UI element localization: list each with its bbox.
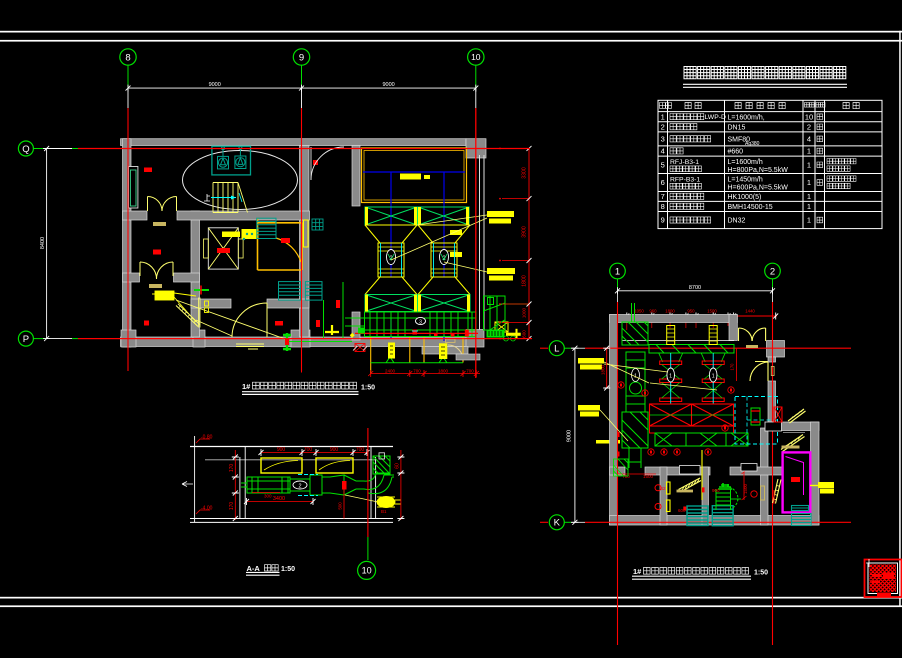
svg-text:1800: 1800 <box>522 275 528 287</box>
svg-text:1: 1 <box>615 266 620 277</box>
svg-text:LWP-D: LWP-D <box>705 114 726 121</box>
svg-text:BMH14500-15: BMH14500-15 <box>728 204 773 211</box>
svg-text:1050: 1050 <box>634 309 644 314</box>
svg-text:3: 3 <box>661 135 665 144</box>
svg-text:700: 700 <box>413 368 421 373</box>
svg-text:1:50: 1:50 <box>754 570 768 577</box>
svg-text:2: 2 <box>661 122 665 131</box>
svg-text:4: 4 <box>807 135 811 144</box>
svg-text:-0.80: -0.80 <box>201 435 213 441</box>
svg-text:8: 8 <box>661 202 665 211</box>
svg-text:2: 2 <box>807 122 811 131</box>
svg-text:P: P <box>23 334 29 345</box>
svg-text:900: 900 <box>330 447 339 453</box>
svg-text:#660: #660 <box>728 149 744 156</box>
svg-text:1500: 1500 <box>643 474 654 479</box>
svg-text:1800: 1800 <box>601 364 606 375</box>
svg-text:1440: 1440 <box>745 309 755 314</box>
svg-text:8700: 8700 <box>689 285 701 291</box>
svg-text:9000: 9000 <box>382 82 394 88</box>
svg-text:Q: Q <box>22 144 29 155</box>
svg-text:10: 10 <box>471 52 481 62</box>
svg-text:RFJ-B3-1: RFJ-B3-1 <box>670 159 699 166</box>
svg-text:8400: 8400 <box>40 237 46 249</box>
svg-text:6: 6 <box>661 178 665 187</box>
svg-text:3: 3 <box>419 319 422 325</box>
svg-text:600: 600 <box>678 508 686 513</box>
svg-text:K: K <box>554 518 561 529</box>
svg-text:1: 1 <box>712 374 715 380</box>
svg-text:5: 5 <box>661 160 665 169</box>
svg-text:9000: 9000 <box>209 82 221 88</box>
svg-text:H=600Pa,N=5.5kW: H=600Pa,N=5.5kW <box>728 184 789 191</box>
svg-text:1: 1 <box>807 192 811 201</box>
svg-text:10: 10 <box>362 566 372 576</box>
svg-text:170: 170 <box>730 363 735 371</box>
svg-text:300: 300 <box>264 494 272 499</box>
svg-text:9: 9 <box>661 216 665 225</box>
svg-text:B1: B1 <box>381 509 387 514</box>
svg-text:700: 700 <box>466 368 474 373</box>
svg-text:60: 60 <box>395 463 401 469</box>
svg-text:2400: 2400 <box>385 368 396 373</box>
svg-text:8: 8 <box>125 52 130 63</box>
svg-text:1#: 1# <box>633 567 642 576</box>
svg-text:950: 950 <box>687 309 695 314</box>
svg-text:B2: B2 <box>660 486 666 491</box>
svg-text:700: 700 <box>622 474 630 479</box>
svg-text:2: 2 <box>298 484 301 490</box>
svg-text:3900: 3900 <box>522 226 528 238</box>
svg-text:9: 9 <box>299 52 304 63</box>
svg-text:-4.00: -4.00 <box>201 506 213 512</box>
svg-text:9000: 9000 <box>567 430 573 442</box>
svg-text:700: 700 <box>304 447 313 453</box>
svg-text:1500: 1500 <box>743 483 748 494</box>
svg-text:2: 2 <box>770 266 775 277</box>
svg-text:1: 1 <box>807 147 811 156</box>
svg-text:900: 900 <box>712 488 720 493</box>
svg-text:1: 1 <box>807 216 811 225</box>
svg-text:1000: 1000 <box>522 307 527 318</box>
svg-text:3300: 3300 <box>522 167 528 179</box>
svg-text:1:50: 1:50 <box>281 566 295 573</box>
svg-text:700: 700 <box>356 447 365 453</box>
svg-text:1800: 1800 <box>438 368 449 373</box>
svg-text:10: 10 <box>805 112 813 121</box>
svg-text:H=800Pa,N=5.5kW: H=800Pa,N=5.5kW <box>728 167 789 174</box>
svg-text:RFP-B3-1: RFP-B3-1 <box>670 177 700 184</box>
svg-text:L=1450m/h: L=1450m/h <box>728 177 763 184</box>
svg-text:1: 1 <box>661 112 665 121</box>
svg-text:3400: 3400 <box>273 496 285 502</box>
svg-text:1: 1 <box>669 374 672 380</box>
svg-text:500: 500 <box>338 502 343 510</box>
svg-text:DN15: DN15 <box>728 124 746 131</box>
svg-text:L=1600m/h,: L=1600m/h, <box>728 114 765 121</box>
svg-text:4: 4 <box>661 147 665 156</box>
svg-text:7: 7 <box>661 192 665 201</box>
svg-text:1: 1 <box>807 178 811 187</box>
svg-text:Ag380: Ag380 <box>745 141 760 147</box>
svg-text:DN32: DN32 <box>728 218 746 225</box>
svg-text:960: 960 <box>649 309 657 314</box>
svg-text:1#: 1# <box>242 382 251 391</box>
svg-text:L=1600m/h: L=1600m/h <box>728 159 763 166</box>
svg-text:A-A: A-A <box>247 564 261 573</box>
svg-text:900: 900 <box>277 447 286 453</box>
svg-text:1: 1 <box>807 202 811 211</box>
svg-text:170: 170 <box>229 502 235 511</box>
svg-text:1800: 1800 <box>665 309 675 314</box>
svg-text:HK1000(5): HK1000(5) <box>728 194 762 201</box>
svg-text:1500: 1500 <box>707 309 717 314</box>
svg-text:1: 1 <box>807 160 811 169</box>
svg-text:1:50: 1:50 <box>361 385 375 392</box>
svg-text:600: 600 <box>522 330 527 338</box>
svg-text:170: 170 <box>229 464 235 473</box>
svg-text:L: L <box>554 344 559 355</box>
